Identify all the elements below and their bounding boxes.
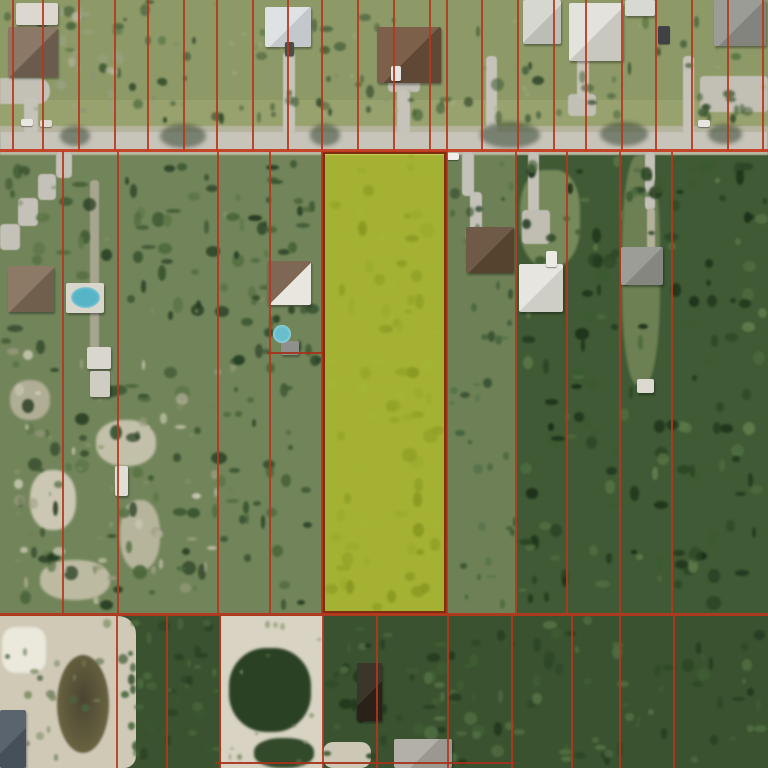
vegetation-blob xyxy=(496,281,499,291)
parcel-line-vertical xyxy=(553,0,555,151)
vegetation-blob xyxy=(204,174,209,181)
vegetation-blob xyxy=(638,103,642,105)
vegetation-blob xyxy=(748,473,753,487)
base-mid-right-openlot xyxy=(447,152,517,614)
vegetation-blob xyxy=(689,547,701,562)
parcel-line-vertical xyxy=(515,151,517,613)
vegetation-blob xyxy=(279,581,290,589)
vegetation-blob xyxy=(477,574,481,580)
vegetation-blob xyxy=(450,387,457,394)
vegetation-blob xyxy=(139,417,147,427)
vegetation-blob xyxy=(347,641,351,654)
vegetation-blob xyxy=(526,488,539,499)
vegetation-blob xyxy=(755,214,768,224)
parcel-line-vertical xyxy=(216,0,218,151)
vegetation-blob xyxy=(473,383,481,386)
vegetation-blob xyxy=(707,295,717,307)
vegetation-blob xyxy=(583,678,592,685)
tree-shadow-road xyxy=(708,124,742,144)
pool-round xyxy=(273,325,291,343)
vegetation-blob xyxy=(488,331,496,341)
vegetation-blob xyxy=(654,178,664,193)
vegetation-blob xyxy=(654,501,668,508)
vegetation-blob xyxy=(281,599,287,610)
parcel-line-vertical xyxy=(571,615,573,768)
vegetation-blob xyxy=(31,547,36,558)
vegetation-blob xyxy=(525,114,531,123)
vegetation-blob xyxy=(7,325,23,332)
barn-white xyxy=(519,264,563,312)
vegetation-blob xyxy=(82,12,91,18)
vegetation-blob xyxy=(532,76,544,85)
vegetation-blob xyxy=(465,594,468,599)
vegetation-blob xyxy=(739,104,745,114)
vegetation-blob xyxy=(266,226,278,233)
vegetation-blob xyxy=(487,463,493,470)
vegetation-blob xyxy=(503,452,509,460)
vegetation-blob xyxy=(450,100,455,106)
vegetation-blob xyxy=(257,222,267,234)
vegetation-blob xyxy=(139,748,148,760)
vegetation-blob xyxy=(507,320,512,326)
vegetation-blob xyxy=(91,72,96,81)
vegetation-blob xyxy=(730,298,736,303)
vegetation-blob xyxy=(82,660,86,666)
tree-shadow-road xyxy=(310,124,340,146)
vegetation-blob xyxy=(292,724,296,727)
vegetation-blob xyxy=(744,212,750,223)
parcel-line-vertical xyxy=(655,0,657,151)
parcel-line-vertical xyxy=(219,615,221,768)
vegetation-blob xyxy=(648,231,656,235)
vegetation-blob xyxy=(254,45,259,50)
vegetation-blob xyxy=(456,731,467,735)
vegetation-blob xyxy=(294,198,303,204)
vegetation-blob xyxy=(174,654,183,661)
parcel-line-vertical xyxy=(287,0,289,151)
vegetation-blob xyxy=(109,522,113,527)
vegetation-blob xyxy=(476,26,480,36)
vegetation-blob xyxy=(508,289,512,300)
vegetation-blob xyxy=(125,177,129,185)
vegetation-blob xyxy=(606,467,616,475)
parcel-line-vertical xyxy=(183,0,185,151)
vegetation-blob xyxy=(450,188,461,198)
vegetation-blob xyxy=(125,384,139,388)
vegetation-blob xyxy=(20,591,31,605)
vegetation-blob xyxy=(572,375,584,379)
vegetation-blob xyxy=(360,75,364,83)
vegetation-blob xyxy=(457,679,464,691)
vegetation-blob xyxy=(690,465,695,477)
vegetation-blob xyxy=(177,618,184,630)
house-east-brown xyxy=(466,227,514,273)
vegetation-blob xyxy=(23,350,33,360)
vegetation-blob xyxy=(265,621,269,628)
vegetation-blob xyxy=(173,453,181,462)
vegetation-blob xyxy=(187,659,191,668)
vegetation-blob xyxy=(49,695,57,701)
vegetation-blob xyxy=(103,619,111,627)
vegetation-blob xyxy=(523,356,533,369)
vegetation-blob xyxy=(256,52,267,59)
vegetation-blob xyxy=(752,527,756,538)
vegetation-blob xyxy=(28,532,35,537)
vegetation-blob xyxy=(173,297,183,312)
vegetation-blob xyxy=(592,228,601,243)
vegetation-blob xyxy=(53,501,58,516)
shed-top-left xyxy=(16,3,58,25)
vegetation-blob xyxy=(97,537,102,539)
vegetation-blob xyxy=(177,163,187,170)
vegetation-blob xyxy=(182,548,190,555)
vegetation-blob xyxy=(73,674,76,681)
vegetation-blob xyxy=(717,696,723,709)
vegetation-blob xyxy=(732,456,740,462)
vegetation-blob xyxy=(607,93,616,99)
vegetation-blob xyxy=(135,519,143,528)
vegetation-blob xyxy=(251,300,257,306)
vegetation-blob xyxy=(1,338,12,344)
vegetation-blob xyxy=(137,273,140,276)
parcel-line-vertical xyxy=(429,0,431,151)
vegetation-blob xyxy=(69,695,78,704)
vegetation-blob xyxy=(150,484,156,489)
vegetation-blob xyxy=(522,66,529,75)
vegetation-blob xyxy=(334,74,339,77)
vegetation-blob xyxy=(708,532,717,545)
vegetation-blob xyxy=(654,665,661,677)
vegetation-blob xyxy=(49,492,51,496)
vegetation-blob xyxy=(128,722,135,730)
vegetation-blob xyxy=(366,85,374,98)
dark-structure-bottom xyxy=(357,663,382,721)
parcel-line-mid-south xyxy=(0,613,768,616)
vegetation-blob xyxy=(243,501,250,514)
vegetation-blob xyxy=(754,630,765,640)
vegetation-blob xyxy=(657,575,662,582)
vegetation-blob xyxy=(680,40,688,48)
house-brown xyxy=(377,27,441,83)
vegetation-blob xyxy=(128,651,133,656)
vegetation-blob xyxy=(137,678,144,689)
driveway-sw-1 xyxy=(56,152,72,178)
vegetation-blob xyxy=(266,165,279,170)
shed-east xyxy=(637,379,654,393)
vegetation-blob xyxy=(134,212,140,227)
vegetation-blob xyxy=(576,169,583,174)
vegetation-blob xyxy=(440,692,445,701)
parcel-line-vertical xyxy=(446,151,448,613)
parcel-line-vertical xyxy=(447,615,449,768)
vegetation-blob xyxy=(735,492,746,496)
vehicle xyxy=(21,119,33,126)
vegetation-blob xyxy=(34,107,37,110)
vegetation-blob xyxy=(323,751,330,756)
vegetation-blob xyxy=(132,467,144,478)
parcel-line-vertical xyxy=(217,151,219,613)
vegetation-blob xyxy=(141,280,147,292)
vegetation-blob xyxy=(742,322,755,332)
vegetation-blob xyxy=(593,255,602,268)
vegetation-blob xyxy=(280,623,285,630)
vegetation-blob xyxy=(130,685,136,694)
vegetation-blob xyxy=(434,682,444,688)
vegetation-blob xyxy=(51,186,58,189)
vegetation-blob xyxy=(424,726,437,740)
vegetation-blob xyxy=(255,732,258,735)
vegetation-blob xyxy=(167,709,177,716)
vegetation-blob xyxy=(174,696,180,705)
vegetation-blob xyxy=(290,160,297,168)
vegetation-blob xyxy=(86,443,91,447)
driveway-east-a xyxy=(462,152,474,196)
vegetation-blob xyxy=(40,216,43,218)
vegetation-blob xyxy=(5,178,12,189)
vegetation-blob xyxy=(709,657,713,670)
vegetation-blob xyxy=(705,259,714,268)
vegetation-blob xyxy=(334,42,346,51)
parcel-line-vertical xyxy=(511,615,513,768)
vegetation-blob xyxy=(234,387,238,392)
vegetation-blob xyxy=(719,195,726,201)
vegetation-blob xyxy=(112,385,127,395)
vegetation-blob xyxy=(525,92,529,97)
vegetation-blob xyxy=(173,42,178,47)
vegetation-blob xyxy=(146,632,152,645)
vegetation-blob xyxy=(366,106,372,112)
vegetation-blob xyxy=(65,463,72,470)
vegetation-blob xyxy=(192,702,204,711)
vegetation-blob xyxy=(475,394,480,402)
vegetation-blob xyxy=(296,223,310,228)
vegetation-blob xyxy=(676,190,684,194)
vegetation-blob xyxy=(266,508,277,518)
vegetation-blob xyxy=(692,375,696,381)
parcel-line-vertical xyxy=(376,615,378,768)
vegetation-blob xyxy=(195,309,198,313)
parcel-line-vertical xyxy=(78,0,80,151)
vegetation-blob xyxy=(700,162,714,173)
vegetation-blob xyxy=(7,348,19,355)
highlighted-parcel xyxy=(322,151,447,614)
vegetation-blob xyxy=(281,474,291,487)
vegetation-blob xyxy=(142,360,145,370)
vegetation-blob xyxy=(48,436,52,438)
vegetation-blob xyxy=(657,557,663,569)
vegetation-blob xyxy=(715,178,720,183)
vegetation-blob xyxy=(731,53,742,60)
vegetation-blob xyxy=(326,76,330,82)
parcel-line-vertical xyxy=(585,0,587,151)
parcel-line-vertical xyxy=(322,615,324,768)
vegetation-blob xyxy=(455,430,465,435)
vegetation-blob xyxy=(129,502,137,517)
vegetation-blob xyxy=(408,98,415,102)
vegetation-blob xyxy=(434,716,446,720)
vegetation-blob xyxy=(550,555,561,561)
vegetation-blob xyxy=(235,411,243,416)
vegetation-blob xyxy=(266,654,270,657)
parcel-line-vertical xyxy=(621,0,623,151)
vegetation-blob xyxy=(595,745,606,749)
vegetation-blob xyxy=(143,621,149,627)
parcel-line-vertical xyxy=(673,615,675,768)
vegetation-blob xyxy=(464,664,472,668)
vegetation-blob xyxy=(450,210,455,217)
vegetation-blob xyxy=(164,165,175,172)
vegetation-blob xyxy=(176,393,188,404)
vegetation-blob xyxy=(129,83,136,90)
vegetation-blob xyxy=(32,255,42,264)
vehicle xyxy=(698,120,710,127)
vegetation-blob xyxy=(545,399,557,404)
vegetation-blob xyxy=(230,747,234,750)
parcel-line-vertical xyxy=(393,0,395,151)
vegetation-blob xyxy=(173,508,187,516)
vegetation-blob xyxy=(244,554,251,561)
vegetation-blob xyxy=(589,545,598,557)
vegetation-blob xyxy=(132,741,140,751)
vegetation-blob xyxy=(582,290,593,297)
parcel-line-vertical xyxy=(62,151,64,613)
vegetation-blob xyxy=(630,486,639,500)
house-mid-left xyxy=(8,266,54,312)
vegetation-blob xyxy=(143,481,149,483)
parcel-line-vertical xyxy=(691,0,693,151)
vegetation-blob xyxy=(20,547,27,554)
vegetation-blob xyxy=(187,537,197,541)
vegetation-blob xyxy=(72,182,87,187)
vegetation-blob xyxy=(25,424,29,430)
parcel-line-vertical xyxy=(114,0,116,151)
vegetation-blob xyxy=(483,378,492,388)
vegetation-blob xyxy=(720,424,733,433)
vegetation-blob xyxy=(518,588,527,592)
vegetation-blob xyxy=(592,737,598,743)
vegetation-blob xyxy=(468,440,472,444)
vegetation-blob xyxy=(59,35,67,46)
vegetation-blob xyxy=(333,672,339,678)
vegetation-blob xyxy=(407,90,412,92)
vegetation-blob xyxy=(739,299,751,308)
vegetation-blob xyxy=(226,213,240,221)
vegetation-blob xyxy=(485,557,492,566)
vegetation-blob xyxy=(241,318,253,326)
vegetation-blob xyxy=(235,194,241,201)
vegetation-blob xyxy=(659,45,662,50)
vegetation-blob xyxy=(513,20,516,23)
vegetation-blob xyxy=(273,622,278,628)
parcel-line-vertical xyxy=(321,151,323,613)
vegetation-blob xyxy=(567,183,572,193)
vegetation-blob xyxy=(28,498,38,509)
vegetation-blob xyxy=(126,541,131,553)
tree-shadow-road xyxy=(60,126,90,146)
vegetation-blob xyxy=(77,467,83,470)
driveway-top-left xyxy=(24,98,38,134)
vegetation-blob xyxy=(333,723,341,730)
vegetation-blob xyxy=(708,569,719,583)
vegetation-blob xyxy=(437,727,446,733)
vegetation-blob xyxy=(536,111,541,119)
vegetation-blob xyxy=(98,558,107,563)
vegetation-blob xyxy=(652,467,657,481)
vegetation-blob xyxy=(380,735,386,746)
vegetation-blob xyxy=(81,704,90,712)
vegetation-blob xyxy=(498,690,503,703)
vegetation-blob xyxy=(466,207,474,217)
vegetation-blob xyxy=(435,642,446,646)
vegetation-blob xyxy=(694,16,699,28)
vegetation-blob xyxy=(673,550,685,556)
parcel-line-vertical xyxy=(671,151,673,613)
parcel-line-vertical xyxy=(619,151,621,613)
vegetation-blob xyxy=(229,42,234,45)
vegetation-blob xyxy=(158,36,166,44)
vegetation-blob xyxy=(149,590,154,596)
vegetation-blob xyxy=(551,628,562,639)
vegetation-blob xyxy=(450,401,453,404)
vegetation-blob xyxy=(272,545,283,557)
parcel-line-vertical xyxy=(566,151,568,613)
vegetation-blob xyxy=(130,184,136,197)
vegetation-blob xyxy=(15,384,24,396)
vegetation-blob xyxy=(730,114,736,123)
vegetation-blob xyxy=(252,419,256,427)
vegetation-blob xyxy=(153,492,159,503)
vegetation-blob xyxy=(66,22,75,30)
vegetation-blob xyxy=(26,741,30,746)
vegetation-blob xyxy=(460,392,470,398)
aerial-map-view[interactable] xyxy=(0,0,768,768)
swimming-pool-oval xyxy=(71,287,100,308)
vegetation-blob xyxy=(528,594,533,603)
vegetation-blob xyxy=(579,198,590,202)
vegetation-blob xyxy=(220,283,228,291)
vegetation-blob xyxy=(513,729,526,735)
driveway-gray-house-east xyxy=(645,152,655,210)
vegetation-blob xyxy=(606,553,612,564)
vegetation-blob xyxy=(460,563,467,569)
vegetation-blob xyxy=(550,524,562,537)
vegetation-blob xyxy=(710,735,718,746)
vegetation-blob xyxy=(188,730,197,736)
parcel-line-vertical xyxy=(116,615,118,768)
vegetation-blob xyxy=(81,17,86,23)
vegetation-blob xyxy=(735,238,741,245)
vegetation-blob xyxy=(297,600,305,605)
vegetation-blob xyxy=(47,726,50,732)
vegetation-blob xyxy=(636,554,642,560)
parcel-line-vertical xyxy=(269,151,271,613)
vegetation-blob xyxy=(205,745,212,757)
vegetation-blob xyxy=(638,335,643,350)
parcel-line-vertical xyxy=(762,0,764,151)
vegetation-blob xyxy=(193,586,197,591)
vegetation-blob xyxy=(641,167,652,181)
vegetation-blob xyxy=(696,642,701,653)
vegetation-blob xyxy=(223,412,231,416)
vegetation-blob xyxy=(110,486,113,491)
vegetation-blob xyxy=(612,76,616,83)
vegetation-blob xyxy=(464,712,477,725)
vegetation-blob xyxy=(148,475,154,481)
vegetation-blob xyxy=(491,745,504,757)
vegetation-blob xyxy=(14,479,23,489)
vegetation-blob xyxy=(82,29,93,35)
vegetation-blob xyxy=(731,444,744,457)
